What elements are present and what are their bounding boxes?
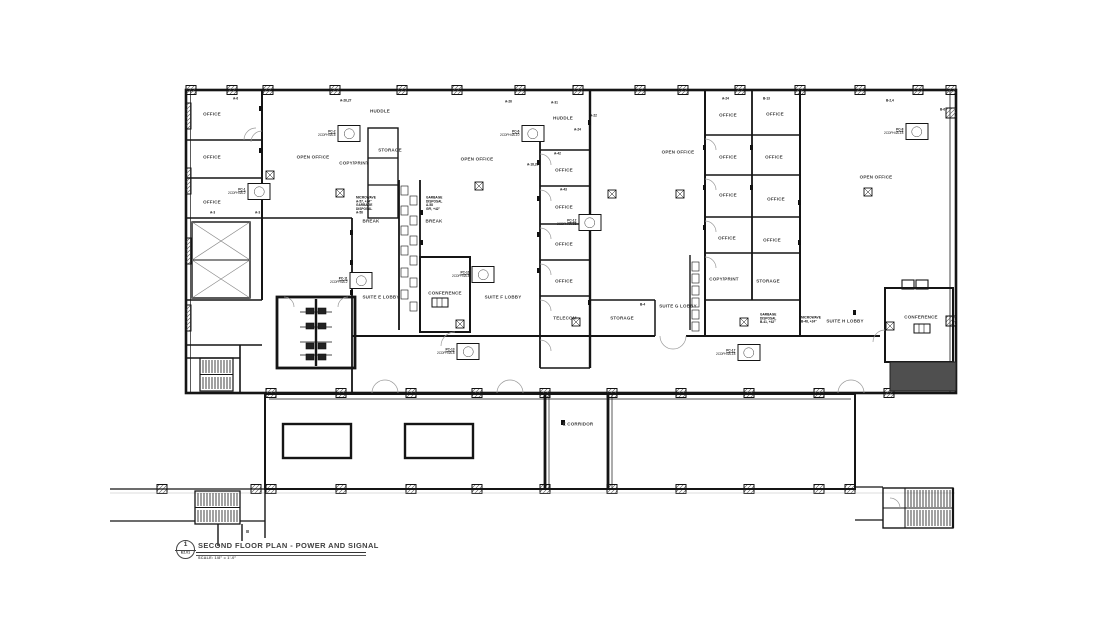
title-block: 1 E2.01 SECOND FLOOR PLAN - POWER AND SI… — [176, 538, 596, 578]
detail-tag-circle: 1 E2.01 — [176, 540, 195, 559]
stair-right-exterior — [883, 488, 953, 528]
sheet-reference: E2.01 — [180, 550, 192, 556]
corridor-label-marker — [561, 420, 565, 425]
drawing-sheet: OFFICEOFFICEOFFICEHUDDLEOPEN OFFICECOPY/… — [0, 0, 1096, 628]
stair-left-main — [200, 358, 233, 391]
drawing-scale: SCALE: 1/8" = 1'-0" — [198, 556, 236, 560]
wall-outlet-ticks — [259, 106, 856, 315]
drawing-title: SECOND FLOOR PLAN - POWER AND SIGNAL — [198, 541, 379, 550]
stair-left-exterior — [195, 491, 249, 533]
main-building-outline — [186, 90, 956, 393]
structural-columns — [157, 86, 956, 494]
detail-number: 1 — [177, 541, 194, 549]
title-underline — [196, 552, 366, 553]
interior-walls — [186, 90, 953, 393]
floor-plan-drawing — [0, 0, 1096, 628]
lower-wing — [265, 394, 855, 489]
shaded-room — [890, 362, 956, 391]
